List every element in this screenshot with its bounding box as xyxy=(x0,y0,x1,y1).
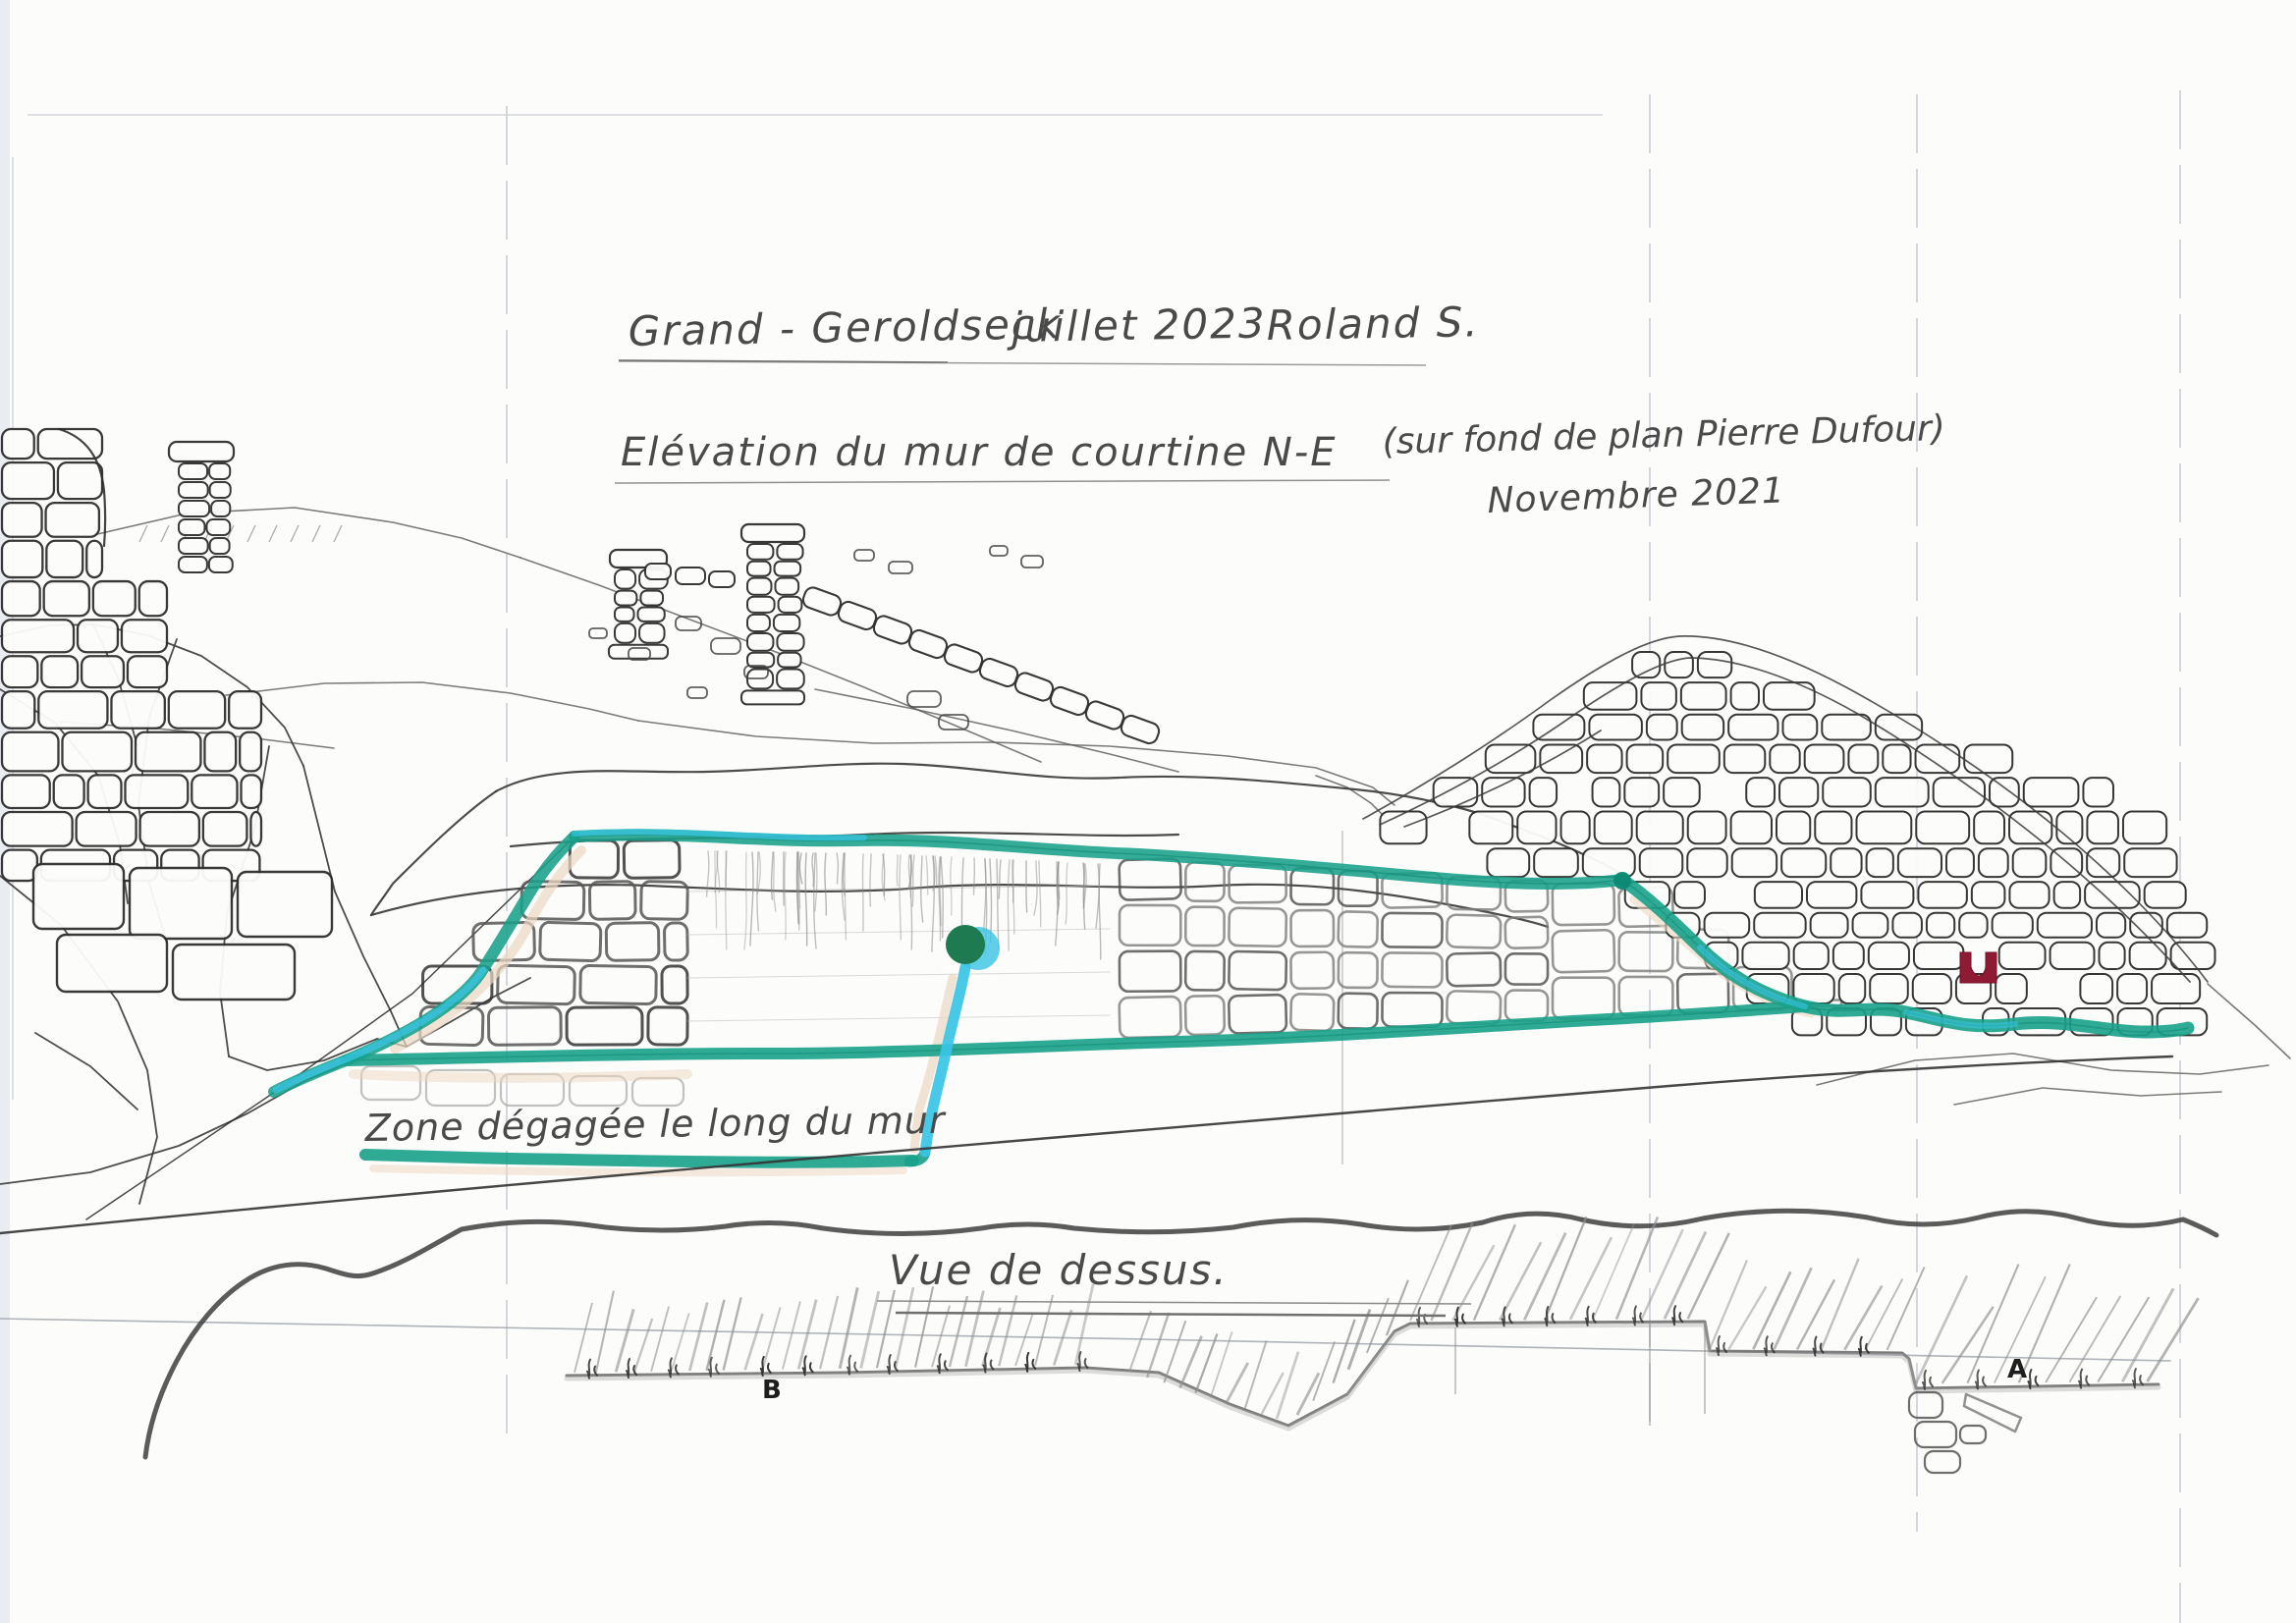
caption-vue-de-dessus: Vue de dessus. xyxy=(889,1246,1229,1294)
sketch-canvas: Grand - Geroldseck juillet 2023 Roland S… xyxy=(0,0,2296,1623)
subtitle-elevation: Elévation du mur de courtine N-E xyxy=(621,430,1338,475)
plan-date: Novembre 2021 xyxy=(1487,470,1786,521)
drawing-layer xyxy=(0,0,2290,1623)
annotation-zone-degagee: Zone dégagée le long du mur xyxy=(364,1099,948,1150)
title-survey-date: juillet 2023 xyxy=(1006,298,1267,352)
title-author: Roland S. xyxy=(1266,298,1480,350)
subtitle-note: (sur fond de plan Pierre Dufour) xyxy=(1382,408,1945,462)
green-survey-dot xyxy=(946,925,1000,970)
plan-point-b: B xyxy=(762,1376,782,1405)
title-underline xyxy=(619,361,1426,365)
ruined-towers xyxy=(589,524,1161,745)
scanned-sketch-sheet: Grand - Geroldseck juillet 2023 Roland S… xyxy=(0,0,2296,1623)
plan-point-a: A xyxy=(2007,1355,2027,1384)
left-masonry-wall xyxy=(2,429,332,1000)
hilltop-pillar xyxy=(169,442,234,572)
subtitle-underline xyxy=(615,480,1390,483)
right-rubble-mound xyxy=(1363,636,2215,1036)
title-site: Grand - Geroldseck xyxy=(628,299,1062,355)
red-opening-marker xyxy=(1960,952,1996,983)
handwriting-layer: Grand - Geroldseck juillet 2023 Roland S… xyxy=(364,298,2028,1405)
